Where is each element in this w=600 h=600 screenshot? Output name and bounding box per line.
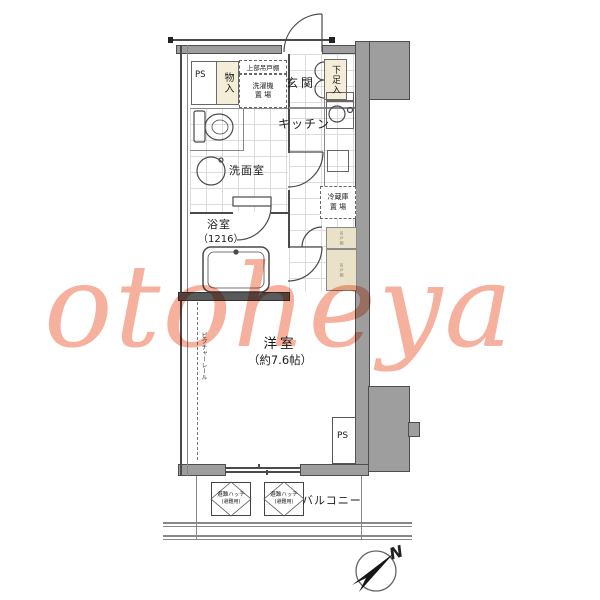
balcony-side-right (361, 476, 362, 540)
window-line-upper (225, 467, 301, 469)
balcony-rail-3 (163, 535, 412, 537)
corridor-wall-upper (288, 54, 290, 153)
ps-shaft-top-box (191, 61, 217, 105)
kitchen-sink-box (326, 101, 354, 129)
window-sash-tick-2 (266, 470, 268, 475)
utility-row-divider (190, 108, 288, 109)
picture-rail-line (197, 302, 198, 460)
bathtub-inner (208, 252, 264, 288)
balcony-side-left (196, 476, 197, 540)
entrance-door-arc (284, 14, 322, 52)
cabinet-top-label: 吊戸棚 (326, 228, 357, 248)
top-wall-right (322, 45, 358, 54)
washer-space-line1: 洗濯機 (253, 82, 274, 91)
hatch-2-line2: (避難用) (275, 499, 294, 505)
fridge-line1: 冷蔵庫 (328, 193, 349, 202)
corridor-edge-line (168, 39, 334, 41)
corridor-wall-lower (288, 190, 290, 248)
kitchen-counter-edge (324, 93, 325, 186)
compass-north-label: N (387, 541, 406, 563)
balcony-rail-4 (163, 539, 412, 540)
bath-room-divider-wall (178, 292, 290, 301)
wall-cap-right (329, 37, 335, 43)
ps-top-label: PS (195, 70, 206, 80)
left-wall-outer (180, 45, 182, 476)
room-label: 洋室 (244, 334, 316, 350)
bottom-wall-right (300, 464, 369, 476)
fridge-line2: 置 場 (330, 203, 346, 212)
toilet-wall-vertical (243, 108, 244, 150)
bottom-right-tab (408, 422, 420, 437)
upper-cabinet-label: 上部吊戸棚 (239, 60, 287, 74)
storage-closet-label: 物入 (216, 63, 239, 103)
toilet-wall-horizontal (190, 150, 244, 151)
washroom-tile-floor (190, 108, 288, 212)
balcony-rail-2 (163, 526, 412, 527)
window-line-lower (225, 471, 301, 473)
kitchen-stove-box (327, 150, 349, 172)
ps-bottom-label: PS (337, 431, 348, 441)
fridge-space-label: 冷蔵庫 置 場 (320, 186, 356, 219)
washroom-bath-wall-right (271, 212, 288, 214)
escape-hatch-1-label: 避難ハッチ (避難用) (211, 482, 251, 516)
washer-space-line2: 置 場 (255, 91, 271, 100)
bathtub-faucet (234, 250, 238, 254)
washroom-label: 洗面室 (229, 162, 265, 178)
balcony-rail-1 (163, 522, 412, 524)
room-size-label: （約7.6帖） (232, 352, 328, 367)
window-sash-tick-1 (258, 464, 260, 469)
washer-space-label: 洗濯機 置 場 (239, 74, 287, 108)
kitchen-label: キッチン (278, 115, 330, 132)
bath-size-label: （1216） (198, 230, 243, 245)
escape-hatch-2-label: 避難ハッチ (避難用) (264, 482, 304, 516)
picture-rail-label: ピクチャーレール (199, 332, 208, 380)
washroom-bath-wall-left (190, 212, 233, 214)
left-wall-inner (187, 45, 188, 476)
bottom-wall-left (178, 464, 226, 476)
floorplan: N PS 物入 上部吊戸棚 洗濯機 置 場 玄関 下足入 キッチン 冷蔵庫 置 … (0, 0, 600, 600)
wall-cap-left (168, 37, 173, 43)
cabinet-bottom-label: 吊戸棚 (326, 251, 357, 289)
entrance-label: 玄関 (286, 74, 316, 91)
compass-circle (356, 551, 396, 591)
shoe-cabinet-label: 下足入 (324, 61, 347, 98)
balcony-label: バルコニー (302, 492, 362, 508)
top-wall-left (176, 45, 282, 54)
compass-needle (352, 553, 394, 592)
hatch-1-line2: (避難用) (222, 499, 241, 505)
bottom-right-block (368, 386, 410, 472)
bathtub (203, 247, 269, 292)
